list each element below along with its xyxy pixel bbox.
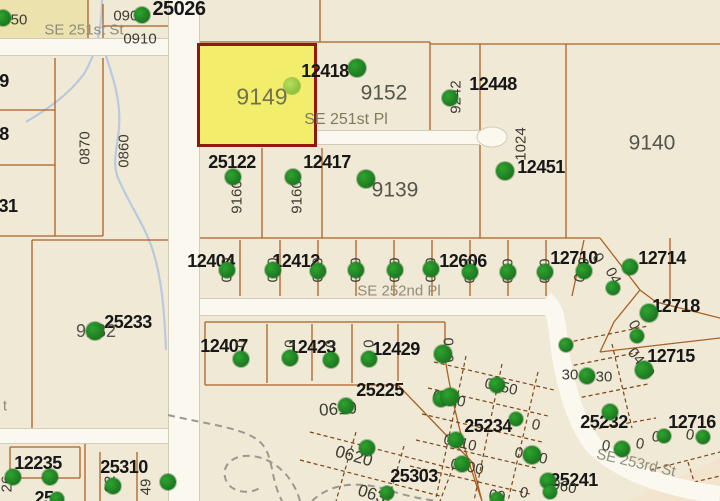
green-point-marker[interactable] xyxy=(265,262,281,278)
parcel-label: 9160 xyxy=(230,180,245,213)
green-point-marker[interactable] xyxy=(310,263,326,279)
parcel-label: 12714 xyxy=(638,249,686,267)
green-point-marker[interactable] xyxy=(134,7,150,23)
green-point-marker[interactable] xyxy=(359,440,375,456)
green-point-marker[interactable] xyxy=(602,404,618,420)
parcel-label: 30 xyxy=(596,370,613,385)
green-point-marker[interactable] xyxy=(489,377,505,393)
green-point-marker[interactable] xyxy=(441,388,459,406)
parcel-map[interactable]: 2502612418124482512212417124511240412412… xyxy=(0,0,720,501)
green-point-marker[interactable] xyxy=(284,78,300,94)
green-point-marker[interactable] xyxy=(361,351,377,367)
parcel-label: 9152 xyxy=(361,83,408,104)
parcel-label: 49 xyxy=(139,479,154,496)
parcel-label: 12418 xyxy=(301,62,349,80)
green-point-marker[interactable] xyxy=(323,352,339,368)
parcel-label: 25234 xyxy=(464,417,512,435)
parcel-label: 12451 xyxy=(517,158,565,176)
green-point-marker[interactable] xyxy=(657,429,671,443)
green-point-marker[interactable] xyxy=(380,486,394,500)
green-point-marker[interactable] xyxy=(233,351,249,367)
green-point-marker[interactable] xyxy=(579,368,595,384)
green-point-marker[interactable] xyxy=(576,263,592,279)
parcel-label: 12417 xyxy=(303,153,351,171)
green-point-marker[interactable] xyxy=(537,264,553,280)
green-point-marker[interactable] xyxy=(285,169,301,185)
parcel-label: 12429 xyxy=(372,340,420,358)
parcel-label: 25303 xyxy=(390,467,438,485)
parcel-label: 25310 xyxy=(100,458,148,476)
green-point-marker[interactable] xyxy=(454,456,470,472)
green-point-marker[interactable] xyxy=(50,492,64,501)
parcel-label: 9160 xyxy=(290,180,305,213)
street-label: SE 251st St xyxy=(44,23,123,38)
green-point-marker[interactable] xyxy=(640,304,658,322)
parcel-label: 1024 xyxy=(514,127,529,160)
street-label: t xyxy=(3,399,7,414)
green-point-marker[interactable] xyxy=(348,59,366,77)
green-point-marker[interactable] xyxy=(225,169,241,185)
green-point-marker[interactable] xyxy=(42,469,58,485)
green-point-marker[interactable] xyxy=(423,261,439,277)
green-point-marker[interactable] xyxy=(282,350,298,366)
parcel-label: 12715 xyxy=(647,347,695,365)
green-point-marker[interactable] xyxy=(348,262,364,278)
green-point-marker[interactable] xyxy=(622,259,638,275)
green-point-marker[interactable] xyxy=(523,446,541,464)
green-point-marker[interactable] xyxy=(0,10,11,26)
parcel-label: 9140 xyxy=(629,133,676,154)
green-point-marker[interactable] xyxy=(105,478,121,494)
green-point-marker[interactable] xyxy=(387,262,403,278)
parcel-label: 31 xyxy=(0,197,18,215)
green-point-marker[interactable] xyxy=(509,412,523,426)
green-point-marker[interactable] xyxy=(434,345,452,363)
parcel-label: 0860 xyxy=(117,134,132,167)
green-point-marker[interactable] xyxy=(5,469,21,485)
parcel-label: 0910 xyxy=(123,32,156,47)
parcel-label: 0870 xyxy=(78,131,93,164)
street-label: SE 251st Pl xyxy=(304,112,388,128)
parcel-label: 12718 xyxy=(652,297,700,315)
green-point-marker[interactable] xyxy=(496,162,514,180)
green-point-marker[interactable] xyxy=(500,264,516,280)
green-point-marker[interactable] xyxy=(219,262,235,278)
parcel-label: 25026 xyxy=(152,0,205,19)
green-point-marker[interactable] xyxy=(462,264,478,280)
green-point-marker[interactable] xyxy=(606,281,620,295)
green-point-marker[interactable] xyxy=(86,322,104,340)
parcel-label: 9 xyxy=(0,72,9,90)
green-point-marker[interactable] xyxy=(543,485,557,499)
green-point-marker[interactable] xyxy=(490,492,504,501)
parcel-label: 30 xyxy=(562,368,579,383)
green-point-marker[interactable] xyxy=(357,170,375,188)
parcel-label: 8 xyxy=(0,125,9,143)
green-point-marker[interactable] xyxy=(442,90,458,106)
parcel-label: 12448 xyxy=(469,75,517,93)
parcel-label: 25225 xyxy=(356,381,404,399)
parcel-label: 12235 xyxy=(14,454,62,472)
green-point-marker[interactable] xyxy=(614,441,630,457)
green-point-marker[interactable] xyxy=(160,474,176,490)
green-point-marker[interactable] xyxy=(448,432,464,448)
street-label: SE 252nd Pl xyxy=(357,284,440,299)
green-point-marker[interactable] xyxy=(338,398,354,414)
parcel-label: 9139 xyxy=(372,180,419,201)
green-point-marker[interactable] xyxy=(559,338,573,352)
green-point-marker[interactable] xyxy=(635,361,653,379)
green-point-marker[interactable] xyxy=(630,329,644,343)
parcel-label: 9149 xyxy=(236,86,287,109)
parcel-label: 50 xyxy=(11,13,28,28)
green-point-marker[interactable] xyxy=(696,430,710,444)
